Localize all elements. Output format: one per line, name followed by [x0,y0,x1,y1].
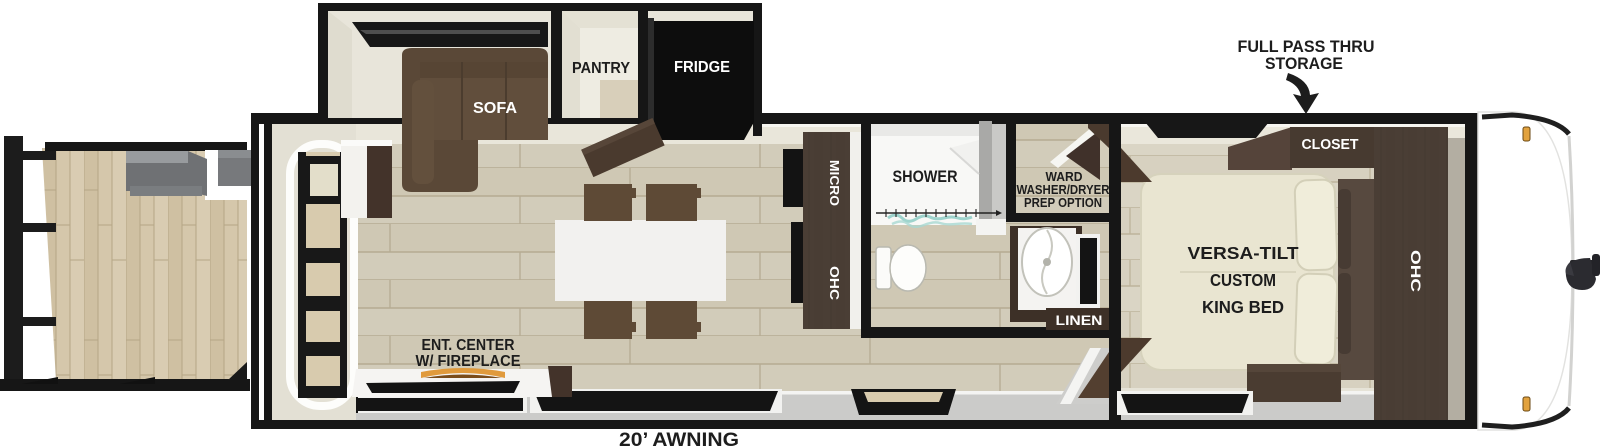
svg-text:KING BED: KING BED [1202,297,1284,317]
svg-text:PANTRY: PANTRY [572,60,630,77]
svg-text:VERSA-TILT: VERSA-TILT [1188,243,1299,263]
svg-text:OHC: OHC [1408,250,1423,292]
svg-text:SOFA: SOFA [473,100,517,117]
svg-text:CLOSET: CLOSET [1302,137,1359,153]
svg-text:FRIDGE: FRIDGE [674,59,730,76]
svg-text:W/ FIREPLACE: W/ FIREPLACE [416,353,521,370]
svg-text:20’ AWNING: 20’ AWNING [619,429,739,448]
svg-text:LINEN: LINEN [1056,312,1103,328]
svg-text:PREP OPTION: PREP OPTION [1024,195,1102,210]
svg-text:SHOWER: SHOWER [893,167,958,186]
svg-text:CUSTOM: CUSTOM [1210,270,1276,290]
svg-text:ENT. CENTER: ENT. CENTER [422,337,515,354]
svg-text:OHC: OHC [827,266,842,301]
svg-text:STORAGE: STORAGE [1265,54,1343,73]
svg-text:MICRO: MICRO [827,160,842,206]
